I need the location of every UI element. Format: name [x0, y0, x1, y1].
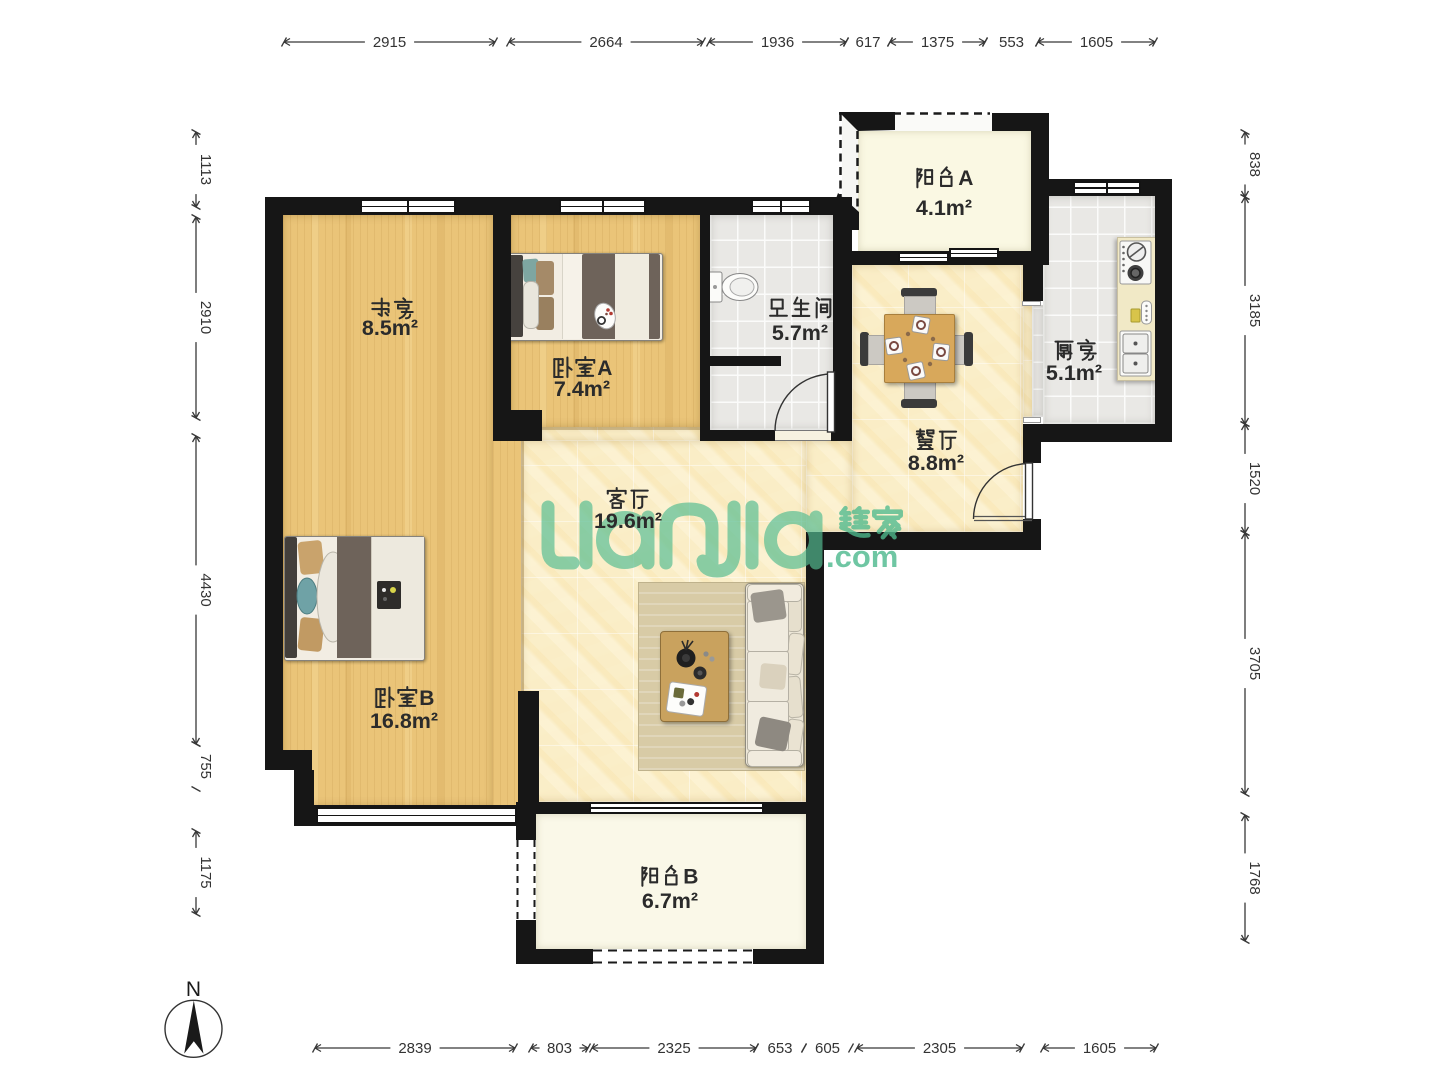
- svg-text:3185: 3185: [1246, 294, 1263, 327]
- svg-text:8.8m²: 8.8m²: [908, 451, 964, 475]
- svg-text:2325: 2325: [657, 1040, 690, 1057]
- svg-text:2915: 2915: [373, 34, 406, 51]
- svg-text:1520: 1520: [1246, 462, 1263, 495]
- svg-text:1936: 1936: [761, 34, 794, 51]
- svg-text:8.5m²: 8.5m²: [362, 316, 418, 340]
- svg-text:755: 755: [197, 754, 214, 779]
- svg-text:3705: 3705: [1246, 647, 1263, 680]
- svg-text:605: 605: [815, 1040, 840, 1057]
- svg-text:N: N: [186, 978, 201, 1001]
- svg-text:1375: 1375: [921, 34, 954, 51]
- svg-text:1175: 1175: [197, 856, 214, 888]
- svg-text:5.1m²: 5.1m²: [1046, 361, 1102, 385]
- svg-text:B: B: [419, 687, 434, 710]
- svg-text:2910: 2910: [197, 301, 214, 334]
- svg-text:653: 653: [767, 1040, 792, 1057]
- svg-text:2664: 2664: [589, 34, 622, 51]
- svg-text:19.6m²: 19.6m²: [594, 509, 662, 533]
- svg-text:B: B: [683, 866, 698, 889]
- svg-text:1768: 1768: [1246, 861, 1263, 894]
- svg-text:803: 803: [547, 1040, 572, 1057]
- svg-text:617: 617: [855, 34, 880, 51]
- svg-text:4430: 4430: [197, 573, 214, 606]
- svg-text:838: 838: [1246, 152, 1263, 177]
- svg-text:.com: .com: [826, 539, 898, 574]
- svg-text:16.8m²: 16.8m²: [370, 709, 438, 733]
- svg-text:553: 553: [999, 34, 1024, 51]
- svg-text:1605: 1605: [1083, 1040, 1116, 1057]
- svg-text:1605: 1605: [1080, 34, 1113, 51]
- svg-text:4.1m²: 4.1m²: [916, 196, 972, 220]
- svg-text:2839: 2839: [398, 1040, 431, 1057]
- svg-text:6.7m²: 6.7m²: [642, 889, 698, 913]
- svg-text:2305: 2305: [923, 1040, 956, 1057]
- svg-text:1113: 1113: [197, 154, 214, 185]
- svg-text:A: A: [958, 167, 973, 190]
- svg-text:7.4m²: 7.4m²: [554, 377, 610, 401]
- svg-text:5.7m²: 5.7m²: [772, 321, 828, 345]
